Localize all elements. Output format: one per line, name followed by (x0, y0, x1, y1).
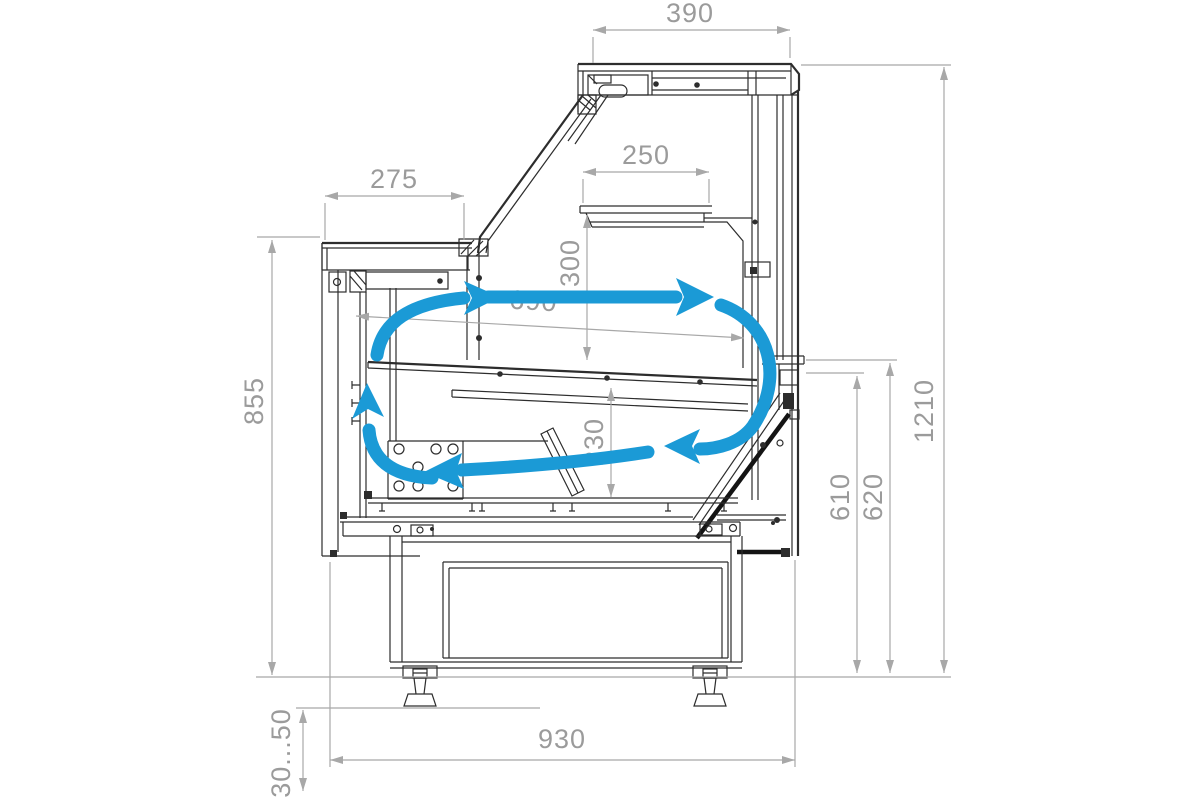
dim-275-label: 275 (370, 164, 418, 194)
corner-block (781, 548, 790, 557)
dim-line-690 (356, 316, 744, 338)
counter-body (322, 243, 472, 270)
band-corner-block (340, 512, 347, 519)
left-corner-block (330, 550, 337, 557)
counter-bracket-plate (366, 272, 448, 289)
plinth (390, 536, 742, 668)
lamp-hatch (588, 75, 597, 84)
dim-30-50-label: 30...50 (266, 708, 296, 798)
counter-hatch-block (350, 271, 366, 292)
bottom-band (340, 517, 740, 522)
dim-610-label: 610 (825, 473, 855, 521)
front-glass-inner (486, 99, 591, 253)
lower-front-panel (693, 393, 786, 525)
left-liner (390, 288, 396, 441)
rail-bumper (780, 370, 798, 385)
airflow-bottom-shaft (462, 452, 648, 470)
dim-620-label: 620 (858, 473, 888, 521)
dim-930-label: 930 (538, 724, 586, 754)
sub-frame (343, 522, 740, 536)
dim-250-label: 250 (622, 140, 670, 170)
dim-855-label: 855 (239, 377, 269, 425)
floor-fasteners (379, 503, 727, 511)
rear-shelf (580, 206, 752, 227)
adjustable-foot-left (403, 666, 437, 706)
case-structure (322, 64, 804, 706)
deck-support-channel (452, 390, 748, 411)
lamp-bracket (594, 75, 611, 83)
dimension-lines: 390 275 250 300 690 230 855 610 620 1210… (239, 0, 951, 798)
well-corner-block (364, 491, 372, 499)
display-case-cross-section: 390 275 250 300 690 230 855 610 620 1210… (0, 0, 1200, 800)
technical-drawing-page: 390 275 250 300 690 230 855 610 620 1210… (0, 0, 1200, 800)
back-bolt-block (750, 267, 757, 274)
canopy-detail (578, 64, 799, 112)
airflow-up-arrow-icon (352, 383, 384, 419)
front-glass (478, 95, 583, 253)
dim-390-label: 390 (666, 0, 714, 28)
adjustable-foot-right (693, 666, 727, 706)
frame-plate-left (411, 525, 433, 536)
dim-1210-label: 1210 (909, 379, 939, 443)
dim-300-label: 300 (555, 239, 585, 287)
